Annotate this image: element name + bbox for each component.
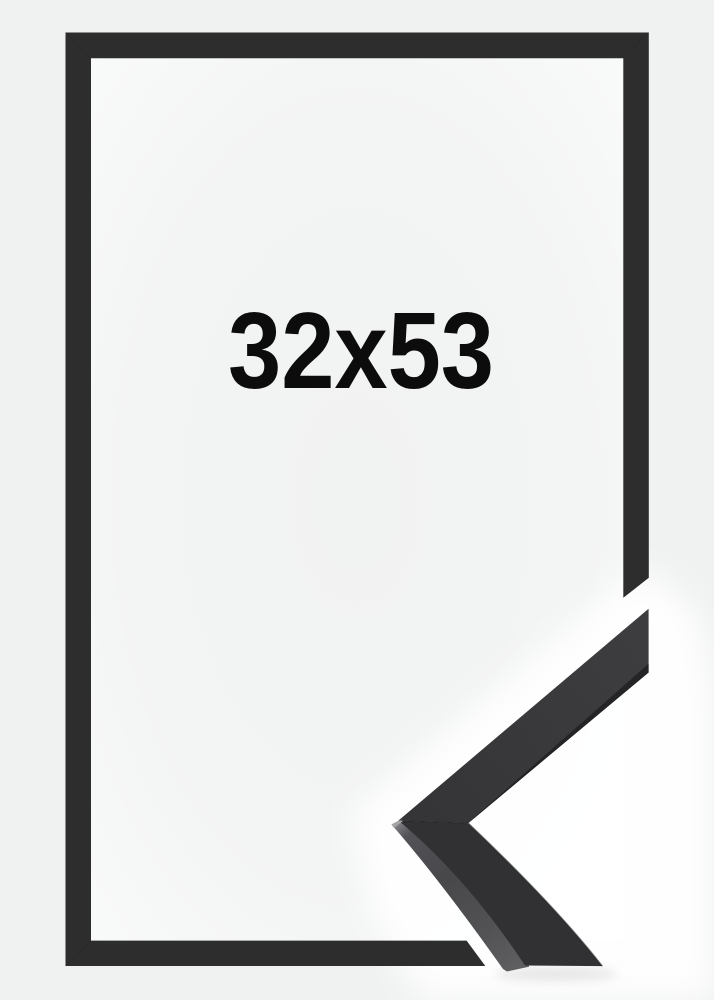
svg-text:32x53: 32x53 xyxy=(228,290,494,411)
